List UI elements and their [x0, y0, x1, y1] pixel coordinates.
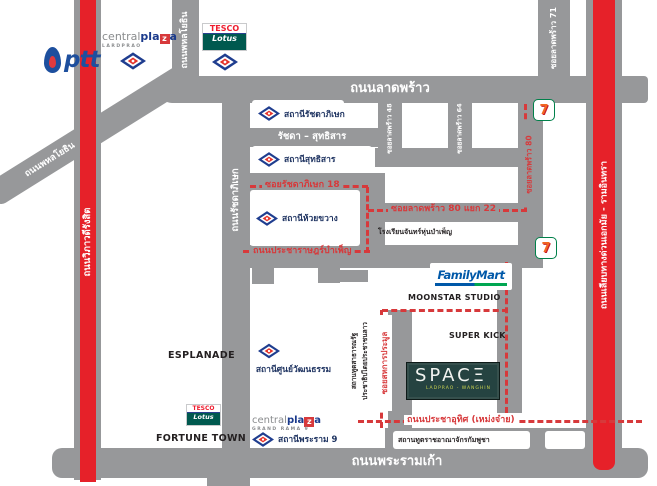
- route-label-soi-ratchadaphisek-18: ซอยรัชดาภิเษก 18: [262, 180, 343, 190]
- familymart-logo: FamilyMart: [430, 263, 512, 290]
- central-plaza-rama9-logo: centralplaza GRAND RAMA 9: [252, 410, 321, 433]
- ptt-logo: ptt: [44, 47, 99, 73]
- road-label-soi-ladprao-71: ซอยลาดพร้าว 71: [547, 0, 561, 78]
- central-brand-part: pla: [140, 30, 159, 43]
- station-label: สถานีสุทธิสาร: [284, 152, 335, 166]
- mrt-logo-icon: [258, 152, 280, 167]
- road-label-soi-ladprao-48: ซอยลาดพร้าว 48: [384, 101, 397, 157]
- station-label: สถานีพระราม 9: [278, 432, 337, 446]
- building-box: [545, 431, 585, 449]
- central-sub-label: GRAND RAMA 9: [252, 428, 321, 433]
- station-label: สถานีรัชดาภิเษก: [284, 107, 345, 121]
- central-z-mark-icon: z: [304, 417, 314, 427]
- seven-numeral: 7: [539, 104, 548, 117]
- road-ratchadaphisek: [222, 76, 250, 486]
- label-fortune-town: FORTUNE TOWN: [156, 434, 246, 444]
- seven-eleven-icon: 7: [533, 99, 555, 121]
- road-label-ratchadaphisek: ถนนรัชดาภิเษก: [229, 150, 243, 250]
- route-label-soi-ladprao-80: ซอยลาดพร้าว 80: [524, 122, 537, 208]
- label-esplanade: ESPLANADE: [168, 351, 235, 361]
- label-moonstar-studio: MOONSTAR STUDIO: [408, 294, 501, 302]
- familymart-wordmark: FamilyMart: [437, 268, 504, 282]
- tesco-lotus-logo: TESCO Lotus: [202, 23, 247, 51]
- label-chanhun-school: โรงเรียนจันทร์หุ่นบำเพ็ญ: [378, 229, 452, 236]
- ptt-wordmark: ptt: [64, 47, 99, 73]
- lao-embassy-line1: สถานทูตสาธารณรัฐ: [349, 333, 360, 389]
- route-label-soi-80-yaek-22: ซอยลาดพร้าว 80 แยก 22: [388, 204, 499, 214]
- central-brand-part: pla: [287, 415, 304, 426]
- central-brand-part: a: [170, 30, 177, 43]
- central-sub-label: LARDPRAO: [102, 45, 177, 50]
- route-label-pracharat-bamphen: ถนนประชาราษฎร์บำเพ็ญ: [250, 246, 354, 256]
- mrt-station-rama9: สถานีพระราม 9: [252, 430, 362, 448]
- central-z-mark-icon: z: [160, 34, 170, 44]
- tesco-wordmark: TESCO: [203, 24, 246, 34]
- familymart-underline-icon: [435, 283, 507, 286]
- tesco-lotus-logo: TESCO Lotus: [186, 404, 221, 426]
- route-label-pracha-uthit: ถนนประชาอุทิศ (เหม่งจ๋าย): [404, 415, 518, 425]
- location-map: ถนนลาดพร้าว ถนนพระรามเก้า รัชดา – สุทธิส…: [0, 0, 657, 486]
- road-label-soi-ladprao-64: ซอยลาดพร้าว 64: [454, 101, 467, 157]
- road-label-phahonyothin-vertical: ถนนพหลโยธิน: [178, 0, 192, 80]
- space-sub-label: LADPRAO - WANGHIN: [415, 386, 491, 391]
- central-plaza-ladprao-logo: centralplaza LARDPRAO: [102, 27, 177, 50]
- mrt-logo-icon: [120, 52, 146, 70]
- station-label-cultural-centre: สถานีศูนย์วัฒนธรรม: [246, 366, 341, 375]
- mrt-logo-icon: [252, 432, 274, 447]
- mrt-logo-icon: [212, 53, 238, 71]
- space-logo: SPACΞ LADPRAO - WANGHIN: [406, 362, 500, 400]
- road-label-vibhavadi: ถนนวิภาวดีรังสิต: [81, 194, 95, 290]
- lao-embassy-line2: ประชาธิปไตยประชาชนลาว: [360, 322, 371, 400]
- mrt-station-ratchadaphisek: สถานีรัชดาภิเษก: [252, 100, 344, 127]
- ptt-flame-icon: [44, 47, 61, 73]
- cambodia-embassy-box: สถานทูตราชอาณาจักรกัมพูชา: [393, 431, 530, 449]
- road-elbow: [330, 270, 368, 282]
- road-label-rama9: ถนนพระรามเก้า: [322, 455, 472, 468]
- central-brand-part: central: [252, 415, 287, 426]
- mrt-station-huai-khwang: สถานีห้วยขวาง: [250, 190, 360, 246]
- seven-numeral: 7: [541, 242, 550, 255]
- seven-eleven-icon: 7: [535, 237, 557, 259]
- lotus-wordmark: Lotus: [203, 34, 246, 50]
- label-super-kick: SUPER KICK: [449, 332, 506, 340]
- road-label-expressway: ถนนเลียบทางด่วนเอกมัย - รามอินทรา: [598, 93, 612, 378]
- station-label: สถานีห้วยขวาง: [282, 211, 338, 225]
- road-label-ratchada-sutthisan: รัชดา – สุทธิสาร: [252, 132, 372, 142]
- mrt-station-sutthisan: สถานีสุทธิสาร: [252, 146, 372, 172]
- central-brand-part: a: [314, 415, 321, 426]
- lotus-wordmark: Lotus: [187, 413, 220, 425]
- road-stub-a: [252, 268, 274, 284]
- route-dash-line: [366, 187, 369, 253]
- mrt-logo-icon: [258, 343, 280, 359]
- space-wordmark: SPACΞ: [415, 365, 487, 386]
- label-lao-embassy: สถานทูตสาธารณรัฐ ประชาธิปไตยประชาชนลาว: [349, 317, 371, 405]
- mrt-logo-icon: [258, 106, 280, 121]
- tesco-wordmark: TESCO: [187, 405, 220, 413]
- route-label-soi-sahakan-pramun: ซอยสหการประมูล: [378, 315, 392, 411]
- central-brand-part: central: [102, 30, 140, 43]
- label-cambodia-embassy: สถานทูตราชอาณาจักรกัมพูชา: [393, 435, 490, 446]
- road-label-ladprao: ถนนลาดพร้าว: [330, 82, 450, 95]
- mrt-logo-icon: [256, 211, 278, 226]
- route-dash-line: [382, 309, 508, 312]
